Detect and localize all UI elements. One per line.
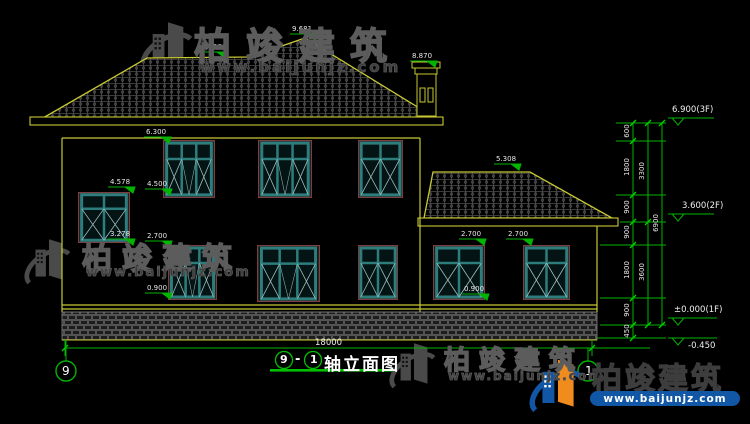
elev-sill-1f: 0.900 <box>147 284 167 292</box>
chain-seg-1800a: 1800 <box>623 145 631 189</box>
elev-chimney-top: 8.870 <box>412 52 432 60</box>
level-ground: -0.450 <box>688 342 715 351</box>
chain-total-6900: 6900 <box>652 201 660 245</box>
wing-eave-fascia <box>418 218 618 226</box>
window-2f-3 <box>358 141 402 198</box>
elev-eave: 6.300 <box>146 128 166 136</box>
brick-base <box>62 312 597 340</box>
title-axis-b: 1 <box>310 353 318 366</box>
drawing-title: 轴立面图 <box>324 350 400 375</box>
chain-sub-3600: 3600 <box>638 250 646 294</box>
watermark-url-middle-left: www.baijunjz.com <box>86 265 251 280</box>
title-axis-a: 9 <box>280 353 288 366</box>
chain-seg-1800b: 1800 <box>623 248 631 292</box>
elev-sill-2f: 4.500 <box>147 180 167 188</box>
level-3f: 6.900(3F) <box>672 106 713 115</box>
level-2f: 3.600(2F) <box>682 202 723 211</box>
title-separator: - <box>295 352 300 367</box>
window-wing-2 <box>523 246 569 300</box>
elev-wing-sill: 0.900 <box>464 285 484 293</box>
window-1f-2 <box>258 246 320 302</box>
dim-18000: 18000 <box>315 338 342 348</box>
logo-url-bottom-right: www.baijunjz.com <box>603 393 726 405</box>
level-1f: ±0.000(1F) <box>674 306 722 315</box>
window-1f-3 <box>358 246 397 300</box>
window-2f-2 <box>259 141 312 198</box>
elev-wing-ridge: 5.308 <box>496 155 516 163</box>
wing-roof <box>418 172 618 226</box>
cad-elevation-drawing: 9.681 9.219 8.870 6.300 5.308 4.578 4.50… <box>0 0 750 424</box>
eave-fascia <box>30 117 443 125</box>
chain-sub-3300: 3300 <box>638 149 646 193</box>
elev-wing-win-top-a: 2.700 <box>461 230 481 238</box>
elev-wing-win-top-b: 2.700 <box>508 230 528 238</box>
axis-left-number: 9 <box>62 364 70 378</box>
watermark-url-bottom-middle: www.baijunjz.com <box>448 369 603 383</box>
chain-seg-450: 450 <box>623 309 631 353</box>
logo-url-bar: www.baijunjz.com <box>590 391 740 406</box>
elev-stair-win-top: 4.578 <box>110 178 130 186</box>
watermark-url-top: www.baijunjz.com <box>200 58 401 76</box>
